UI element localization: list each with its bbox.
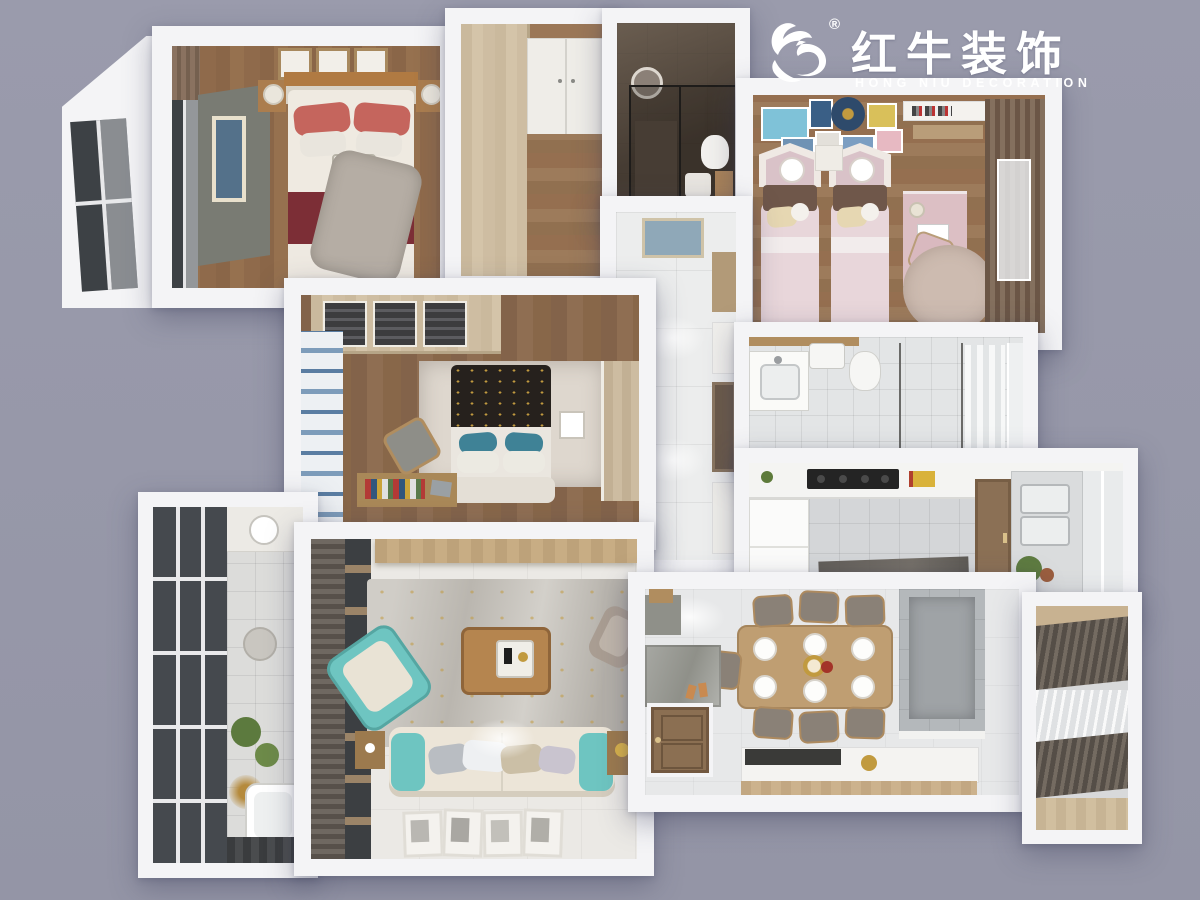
- room-balcony-right: [1022, 592, 1142, 844]
- window-sheer: [997, 159, 1031, 281]
- round-pillow: [861, 203, 879, 221]
- basin: [249, 515, 279, 545]
- burner: [839, 475, 847, 483]
- plate: [753, 637, 777, 661]
- vanity-sink: [749, 351, 809, 411]
- fridge-door-seam: [750, 546, 808, 548]
- bathroom-window: [1007, 343, 1023, 453]
- closet-wardrobe: [461, 24, 530, 276]
- bedside-art: [559, 411, 585, 439]
- wardrobe-glass-door: [423, 301, 467, 347]
- headboard-plate: [849, 157, 875, 183]
- desk-with-books: [357, 473, 457, 507]
- window-mullion: [153, 799, 227, 803]
- kitchen-plant: [761, 471, 773, 483]
- art-frame: [761, 107, 809, 141]
- glass-partition: [961, 343, 963, 453]
- room-bedroom-2: [284, 278, 656, 550]
- brown-curtain: [985, 99, 1045, 333]
- leaning-frame: [402, 810, 444, 857]
- frame-art: [451, 818, 470, 843]
- bed-headboard: [284, 72, 418, 86]
- sink-basin: [1020, 516, 1070, 546]
- leaning-frame: [442, 808, 484, 857]
- sink-basin: [1020, 484, 1070, 514]
- leaning-frame: [522, 808, 564, 857]
- burner: [861, 475, 869, 483]
- round-rug: [903, 245, 995, 333]
- bathroom-sink: [685, 173, 711, 197]
- door-handle: [558, 79, 562, 83]
- niche-cabinet-wood: [712, 252, 736, 312]
- living-floor: [311, 539, 637, 859]
- sheet-band: [831, 237, 889, 253]
- throw-pillow: [537, 745, 576, 776]
- niche-cabinet-white: [712, 482, 736, 554]
- frame-art: [531, 818, 550, 843]
- table-lamp: [421, 84, 440, 105]
- glass-partition: [899, 343, 901, 453]
- shower-floor: [635, 121, 677, 199]
- door-panel: [661, 743, 703, 769]
- door-handle: [1003, 533, 1007, 543]
- room-kids-bedroom: [736, 78, 1062, 350]
- room-balcony-left: [138, 492, 318, 878]
- side-table: [243, 627, 277, 661]
- gold-bowl: [861, 755, 877, 771]
- sideboard-counter: [741, 747, 977, 795]
- shower-glass-divider: [679, 87, 681, 205]
- curtain: [172, 46, 200, 100]
- bay-window-glass: [70, 118, 138, 291]
- brand-logo: ® 红牛装饰 HONG NIU DECORATION: [765, 16, 1065, 108]
- ledge: [899, 731, 985, 739]
- curtain-wall: [311, 539, 345, 859]
- door-handle: [571, 79, 575, 83]
- bull-swoosh-icon: [765, 20, 839, 90]
- room-ensuite-bathroom: [602, 8, 750, 220]
- wood-shelf: [913, 125, 983, 139]
- side-wardrobe: [601, 361, 639, 501]
- side-table: [355, 731, 385, 769]
- marble-feature-wall: [899, 589, 985, 739]
- desk-lamp: [909, 202, 925, 218]
- hallway-art: [642, 218, 704, 258]
- sofa: [389, 727, 615, 803]
- counter-appliances: [745, 749, 841, 765]
- closet-white-doors: [527, 38, 604, 136]
- water-heater: [809, 343, 845, 369]
- ensuite-floor: [617, 23, 735, 205]
- wood-box: [649, 589, 673, 603]
- brand-name-english: HONG NIU DECORATION: [855, 76, 1091, 90]
- plate: [753, 675, 777, 699]
- tub-inner: [254, 792, 292, 838]
- room-walk-in-closet: [445, 8, 620, 292]
- condiment-box: [909, 471, 935, 487]
- laptop: [430, 480, 452, 498]
- gold-bowl: [518, 652, 528, 662]
- balcony-counter: [227, 507, 303, 552]
- window-mullion: [1101, 471, 1104, 595]
- counter-wood-front: [741, 781, 977, 795]
- door-panel: [661, 715, 703, 741]
- table-lamp: [263, 84, 284, 105]
- sheet-band: [761, 237, 819, 253]
- frame-art: [491, 820, 509, 842]
- flower-pot: [1040, 568, 1054, 582]
- dining-floor: [645, 589, 1019, 795]
- books-row: [365, 479, 425, 499]
- dark-drape: [1036, 732, 1128, 798]
- tray: [496, 640, 534, 678]
- wardrobe-glass-door: [373, 301, 417, 347]
- dining-chair: [752, 706, 794, 741]
- frame-art: [411, 820, 430, 843]
- plate: [851, 675, 875, 699]
- sink-basin: [760, 364, 800, 400]
- kids-floor: [753, 95, 1045, 333]
- bathroom-floor: [749, 337, 1023, 459]
- doormat: [645, 645, 721, 707]
- window-mullion: [153, 577, 227, 581]
- window-mullion: [153, 725, 227, 729]
- patterned-blanket: [451, 365, 551, 427]
- niche-shelf-dark: [712, 382, 736, 472]
- plant: [231, 717, 261, 747]
- plant: [255, 743, 279, 767]
- door-knob: [655, 737, 661, 743]
- tv-console: [375, 539, 637, 563]
- dark-floor-mat: [227, 837, 303, 863]
- remote: [504, 648, 512, 664]
- window-sheer: [186, 96, 198, 288]
- teal-side-cushion: [391, 733, 425, 791]
- room-bedroom-1: [152, 26, 460, 308]
- floor-to-ceiling-window: [153, 507, 227, 863]
- cooktop: [807, 469, 899, 489]
- kitchen-window: [1083, 471, 1123, 595]
- bedroom-1-floor: [172, 46, 440, 288]
- bedroom-2-floor: [301, 295, 639, 533]
- niche-cabinet-white: [712, 322, 736, 374]
- closet-floor: [461, 24, 604, 276]
- wood-sill: [1036, 798, 1128, 830]
- gold-lamp: [615, 743, 629, 757]
- room-living: [294, 522, 654, 876]
- mug: [365, 743, 375, 753]
- leaning-frame: [483, 811, 524, 858]
- bed-headboard: [447, 477, 555, 503]
- shower-curtain: [965, 345, 1005, 449]
- daybed-artwork: [212, 116, 246, 202]
- burner: [881, 475, 889, 483]
- white-pillow: [503, 451, 545, 473]
- window-mullion: [176, 507, 180, 863]
- dining-chair: [844, 594, 885, 627]
- dining-chair: [752, 594, 794, 629]
- toilet: [701, 135, 729, 169]
- burner: [817, 475, 825, 483]
- armchair-cushion: [339, 637, 417, 715]
- white-pillow: [457, 451, 499, 473]
- entry-door: [651, 707, 709, 773]
- headboard-plate: [779, 157, 805, 183]
- balcony-floor: [153, 507, 303, 863]
- marble-inner-panel: [909, 597, 975, 719]
- lamp-glow: [469, 719, 535, 759]
- dining-table: [737, 625, 893, 709]
- dining-chair: [798, 590, 840, 624]
- berries: [821, 661, 833, 673]
- registered-mark: ®: [829, 16, 840, 33]
- closet-wood-floor: [527, 134, 604, 276]
- kids-twin-bed: [759, 143, 821, 323]
- toilet: [849, 351, 881, 391]
- room-dining: [628, 572, 1036, 812]
- plate: [803, 679, 827, 703]
- round-pillow: [791, 203, 809, 221]
- faucet: [774, 356, 782, 364]
- dining-chair: [798, 710, 840, 744]
- brand-name-chinese: 红牛装饰: [851, 18, 1071, 84]
- dining-chair: [844, 706, 885, 739]
- kids-nightstand: [815, 145, 843, 171]
- coffee-table: [461, 627, 551, 695]
- apartment-render-stage: ® 红牛装饰 HONG NIU DECORATION: [0, 0, 1200, 900]
- balcony-right-floor: [1036, 606, 1128, 830]
- plate: [851, 637, 875, 661]
- plate: [803, 633, 827, 657]
- dark-drape: [1036, 616, 1128, 690]
- window-mullion: [153, 651, 227, 655]
- double-bed: [451, 365, 551, 505]
- window-mullion: [201, 507, 205, 863]
- closet-door-divider: [565, 39, 567, 135]
